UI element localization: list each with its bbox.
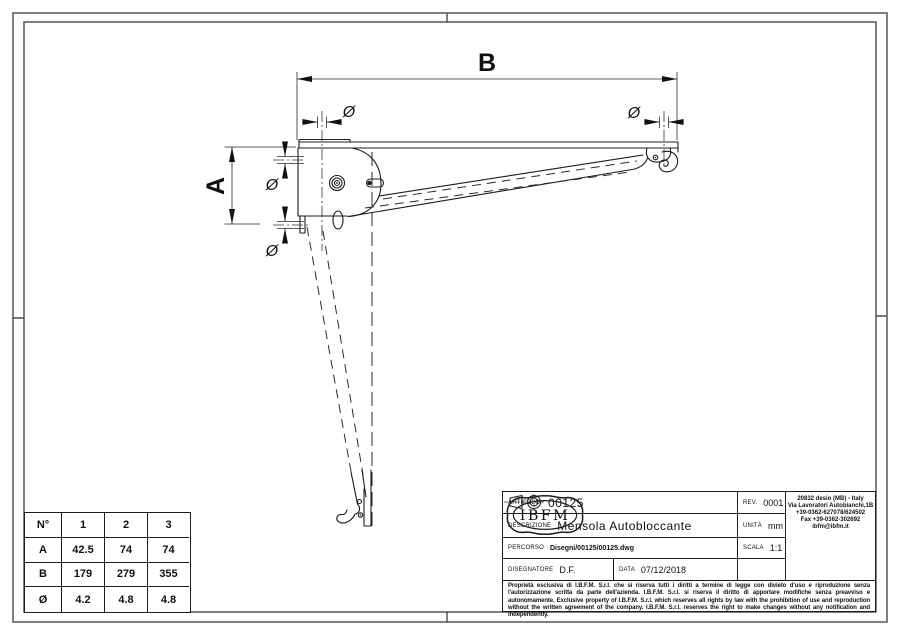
table-cell: 279 [105,563,148,588]
diameter-symbol: Ø [342,104,357,121]
projection-cell [738,559,786,581]
rev-cell: REV. 0001 [738,492,786,514]
percorso-cell: PERCORSO Disegni/00125/00125.dwg [503,538,738,559]
table-cell: 179 [62,563,105,588]
table-cell: 4.8 [148,587,189,612]
dim-a-label: A [202,177,230,195]
diameter-symbol: Ø [627,105,642,122]
unita-value: mm [768,521,783,531]
hole-dim-top-left: Ø [302,104,357,251]
diameter-symbol: Ø [265,243,280,260]
scala-cell: SCALA 1:1 [738,538,786,559]
address-line: Via Lavoratori Autobianchi,1B [788,503,873,510]
dimension-a: A [202,147,296,224]
data-cell: DATA 07/12/2018 [614,559,738,581]
scala-label: SCALA [743,545,764,551]
disegnatore-value: D.F. [559,565,575,575]
table-cell: 74 [105,538,148,563]
table-cell: 74 [148,538,189,563]
rev-value: 0001 [763,498,783,508]
table-cell: 355 [148,563,189,588]
legal-notice: Proprietà esclusiva di I.B.F.M. S.r.l. c… [503,581,875,621]
title-block: ARTICOLO. 00125 REV. 0001 DESCRIZIONE Me… [502,491,876,612]
unita-cell: UNITÀ mm [738,514,786,538]
size-table-header-3: 3 [148,513,189,538]
scala-value: 1:1 [770,543,783,553]
data-label: DATA [619,567,635,573]
size-table: N° 1 2 3 A 42.5 74 74 B 179 279 355 Ø 4.… [24,512,191,613]
dimension-b: B [297,49,677,140]
folded-position [307,152,372,528]
logo-cell: IBFM 20832 desio (MB) - Italy Via Lavora… [786,492,875,581]
pivot-rivet [330,176,345,191]
latch-hook [646,148,677,172]
disegnatore-cell: DISEGNATORE D.F. [503,559,614,581]
drawing-sheet: B A Ø Ø Ø [0,0,900,635]
lower-pin-hole [333,211,343,229]
table-row-label: Ø [25,587,62,612]
size-table-header-n: N° [25,513,62,538]
data-value: 07/12/2018 [641,565,686,575]
hole-dim-plate-upper: Ø [265,142,306,194]
logo-address: 20832 desio (MB) - Italy Via Lavoratori … [788,496,873,531]
address-line: ibfm@ibfm.it [788,524,873,531]
unita-label: UNITÀ [743,523,762,529]
diameter-symbol: Ø [265,177,280,194]
size-table-header-1: 1 [62,513,105,538]
address-line: Fax +39-0362-302692 [788,517,873,524]
address-line: 20832 desio (MB) - Italy [788,496,873,503]
table-cell: 4.2 [62,587,105,612]
disegnatore-label: DISEGNATORE [508,567,553,573]
rev-label: REV. [743,500,757,506]
table-row-label: B [25,563,62,588]
dim-b-label: B [478,49,496,77]
bracket-outline [298,140,678,234]
table-cell: 4.8 [105,587,148,612]
percorso-label: PERCORSO [508,545,544,551]
table-cell: 42.5 [62,538,105,563]
address-line: +39-0362-627078/624502 [788,510,873,517]
size-table-header-2: 2 [105,513,148,538]
table-row-label: A [25,538,62,563]
percorso-value: Disegni/00125/00125.dwg [550,545,634,552]
